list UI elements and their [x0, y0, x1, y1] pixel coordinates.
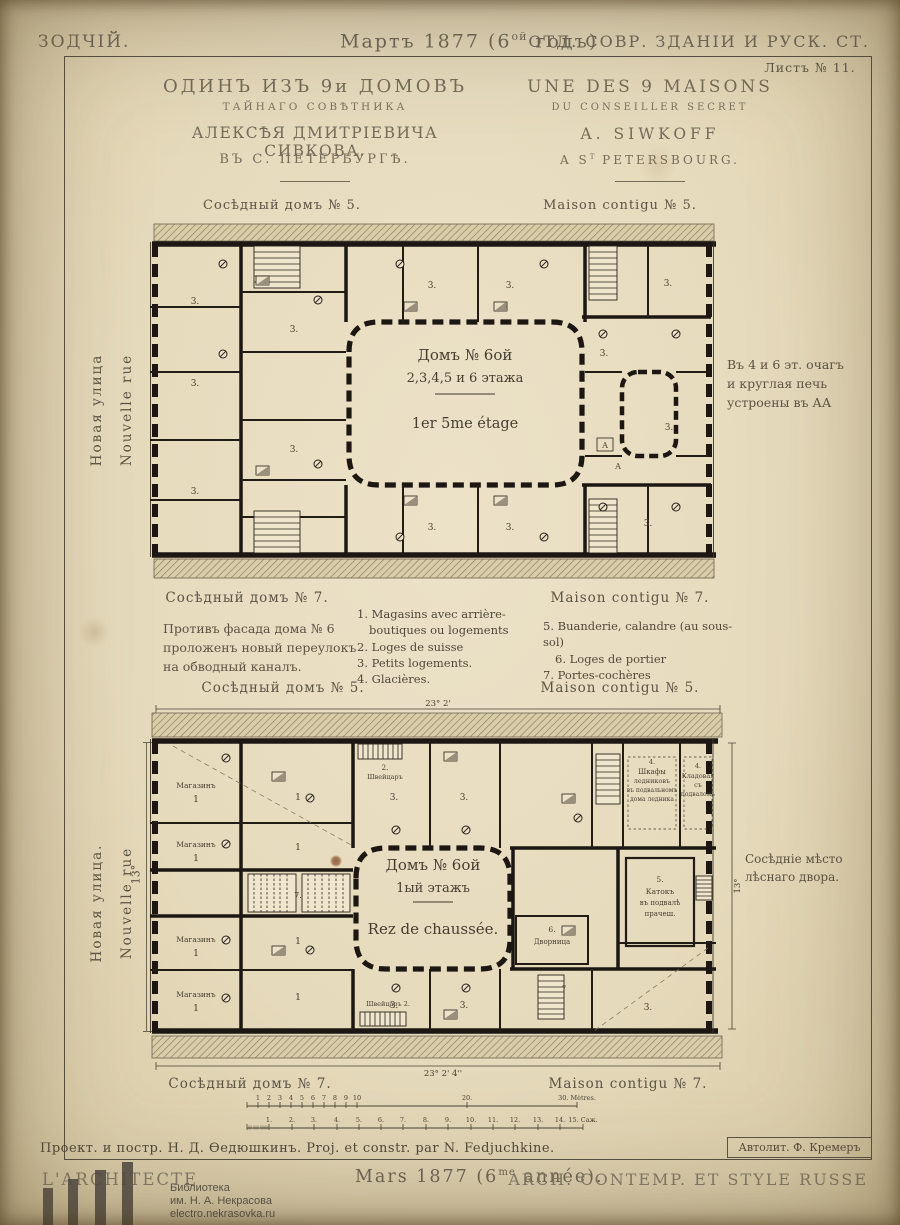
title-fr-line1: UNE DES 9 MAISONS — [500, 77, 800, 97]
text-line: 5. Buanderie, calandre (au sous-sol) — [543, 618, 743, 651]
street-label-ru-upper: Новая улица — [89, 335, 105, 485]
scale-tick-label: 8. — [423, 1116, 429, 1124]
watermark-logo-bar — [95, 1170, 106, 1225]
dim-label: 23° 2' — [425, 699, 451, 709]
room-label: дома ледника — [630, 796, 674, 803]
room-label: Швейцаръ — [367, 773, 403, 781]
text-line: Въ 4 и 6 эт. очагъ — [727, 356, 875, 375]
text-line: 2. Loges de suisse — [357, 639, 542, 655]
text-line: boutiques ou logements — [357, 622, 542, 638]
title-fr-rule — [615, 181, 685, 182]
text-line: 4. Glacières. — [357, 671, 542, 687]
room-label: 3. — [644, 519, 653, 529]
sheet-number: Листъ № 11. — [750, 60, 870, 75]
scale-tick-label: 8 — [333, 1094, 337, 1102]
title-fr-line4-b: PETERSBOURG. — [595, 153, 740, 167]
lower-neighbor-top-fr: Maison contigu № 5. — [520, 680, 720, 696]
scale-tick-label: 3. — [311, 1116, 317, 1124]
journal-name: ЗОДЧІЙ. — [38, 32, 130, 52]
footer-date-main: Mars 1877 (6 — [355, 1167, 498, 1187]
room-label: 1 — [295, 792, 301, 803]
scale-tick-label: 7 — [322, 1094, 326, 1102]
scale-tick-label: 6 — [311, 1094, 315, 1102]
room-label: Магазинъ — [176, 840, 216, 849]
text-line: на обводный каналъ. — [163, 658, 363, 677]
title-fr-line2: DU CONSEILLER SECRET — [500, 102, 800, 113]
plan-title: Домъ № 6ой — [418, 346, 513, 364]
text-line: 6. Loges de portier — [543, 651, 743, 667]
title-fr-line4: A ST PETERSBOURG. — [500, 153, 800, 167]
lower-neighbor-top-ru: Сосѣдный домъ № 5. — [183, 680, 383, 696]
room-label: А — [602, 441, 608, 450]
title-fr-line3: A. SIWKOFF — [500, 125, 800, 143]
ground-floor-plan-drawing: Домъ № 6ой1ый этажъRez de chaussée.23° 2… — [148, 698, 748, 1078]
title-ru-rule — [280, 181, 350, 182]
scale-tick-label: 6. — [378, 1116, 384, 1124]
lower-neighbor-bottom-ru: Сосѣдный домъ № 7. — [150, 1076, 350, 1092]
masthead-section: ОТД. СОВР. ЗДАНІИ И РУСК. СТ. — [528, 32, 870, 51]
scale-tick-label: 9. — [445, 1116, 451, 1124]
room-label: 1 — [193, 853, 199, 864]
text-line: electro.nekrasovka.ru — [170, 1208, 275, 1221]
text-line: им. Н. А. Некрасова — [170, 1195, 275, 1208]
plan-title: 2,3,4,5 и 6 этажа — [407, 371, 524, 386]
room-label: 3. — [506, 281, 515, 291]
scale-tick-label: 4 — [289, 1094, 293, 1102]
text-line: Сосѣдніе мѣсто — [745, 850, 880, 868]
scale-tick-label: 2. — [289, 1116, 295, 1124]
scale-tick-label: 3 — [278, 1094, 282, 1102]
room-label: 3. — [600, 349, 609, 359]
masthead-date-sup: ой — [511, 30, 527, 43]
watermark-logo-bar — [43, 1188, 53, 1225]
room-label: ледниковъ — [634, 777, 670, 785]
legend-column-1: 1. Magasins avec arrière-boutiques ou lo… — [357, 606, 542, 688]
lower-plan-note: Сосѣдніе мѣстолѣснаго двора. — [745, 850, 880, 886]
room-label: 3. — [644, 1003, 653, 1013]
room-label: Магазинъ — [176, 935, 216, 944]
room-label: 2. — [382, 764, 389, 772]
scale-tick-label: 12. — [510, 1116, 520, 1124]
dim-label: 23° 2' 4'' — [424, 1069, 462, 1078]
room-label: 3. — [290, 325, 299, 335]
room-label: 7 — [562, 985, 566, 993]
room-label: 3. — [191, 297, 200, 307]
room-label: 3. — [460, 1001, 469, 1011]
room-label: А — [615, 462, 621, 471]
legend-column-2: 5. Buanderie, calandre (au sous-sol)6. L… — [543, 618, 743, 683]
room-label: подваломъ — [681, 791, 715, 798]
party-wall-hatch-top — [152, 713, 722, 737]
room-label: 1 — [295, 992, 301, 1003]
masthead-date-main: Мартъ 1877 (6 — [340, 30, 511, 52]
room-label: прачеш. — [645, 910, 676, 918]
plan-title: Домъ № 6ой — [386, 856, 481, 874]
lithographer-credit: Автолит. Ф. Кремеръ — [727, 1137, 872, 1158]
scale-tick-label: 20. — [462, 1094, 472, 1102]
text-line: устроены въ АА — [727, 394, 875, 413]
room-label: 3. — [506, 523, 515, 533]
room-label: 7. — [294, 891, 302, 900]
room-label: въ подвалѣ — [640, 899, 681, 907]
scale-tick-label: 15. Саж. — [568, 1116, 597, 1124]
scale-tick-label: 9 — [344, 1094, 348, 1102]
tile-stove-icons — [256, 276, 507, 505]
room-label: 1 — [295, 842, 301, 853]
scale-tick-label: 30. Mètres. — [558, 1094, 596, 1102]
room-label: 1 — [193, 794, 199, 805]
room-label: Магазинъ — [176, 990, 216, 999]
upper-neighbor-bottom-fr: Maison contigu № 7. — [530, 590, 730, 606]
room-label: Катокъ — [646, 887, 675, 896]
party-wall-hatch-bottom — [154, 559, 714, 578]
upper-neighbor-top-fr: Maison contigu № 5. — [520, 198, 720, 213]
scale-tick-label: 7. — [400, 1116, 406, 1124]
scale-bars: 1234567891020.30. Mètres. 1.2.3.4.5.6.7.… — [233, 1092, 733, 1140]
plan-title: Rez de chaussée. — [368, 920, 499, 938]
watermark-logo-bar — [68, 1179, 78, 1225]
room-label: 1 — [193, 1003, 199, 1014]
architect-credit: Проект. и постр. Н. Д. Ѳедюшкинъ. Proj. … — [40, 1141, 555, 1156]
scale-tick-label: 10. — [466, 1116, 476, 1124]
room-label: 3. — [191, 379, 200, 389]
street-label-fr-lower: Nouvelle rue — [119, 828, 135, 978]
upper-floor-plan-drawing: Домъ № 6ой2,3,4,5 и 6 этажа1er 5me étage… — [148, 222, 723, 582]
title-ru-line2: ТАЙНАГО СОВѢТНИКА — [155, 101, 475, 113]
dim-label: 13° — [733, 878, 743, 893]
room-label: 3. — [428, 281, 437, 291]
legend-note-ru: Противъ фасада дома № 6проложенъ новый п… — [163, 620, 363, 676]
scale-tick-label: 5. — [356, 1116, 362, 1124]
scanned-page: ЗОДЧІЙ. Мартъ 1877 (6ой годъ) ОТД. СОВР.… — [0, 0, 900, 1225]
room-label: 1 — [295, 936, 301, 947]
plan-title: 1ый этажъ — [396, 881, 470, 896]
room-label: 4. — [649, 758, 655, 766]
title-ru-line4: ВЪ С. ПЕТЕРБУРГѢ. — [155, 152, 475, 167]
upper-neighbor-top-ru: Сосѣдный домъ № 5. — [182, 198, 382, 213]
footer-section-fr: ARCH. CONTEMP. ET STYLE RUSSE — [508, 1170, 868, 1189]
room-label: Дворница — [534, 938, 570, 946]
room-label: 3. — [428, 523, 437, 533]
room-label: Швейцаръ 2. — [366, 1000, 410, 1008]
title-fr-line4-a: A S — [560, 153, 590, 167]
text-line: 3. Petits logements. — [357, 655, 542, 671]
text-line: Библиотека — [170, 1182, 275, 1195]
room-label: въ подвальномъ — [627, 787, 678, 794]
text-line: 1. Magasins avec arrière- — [357, 606, 542, 622]
room-label: Шкафы — [638, 768, 666, 776]
party-wall-hatch-top — [154, 224, 714, 241]
scale-tick-label: 14. — [555, 1116, 565, 1124]
room-label: Магазинъ — [176, 781, 216, 790]
metric-scale: 1234567891020.30. Mètres. — [247, 1094, 596, 1108]
watermark-logo-bar — [122, 1162, 133, 1225]
scale-tick-label: 13. — [533, 1116, 543, 1124]
room-label: 1 — [193, 948, 199, 959]
room-label: 3. — [460, 793, 469, 803]
street-label-ru-lower: Новая улица. — [89, 828, 105, 978]
room-label: 3. — [390, 793, 399, 803]
title-ru-line1: ОДИНЪ ИЗЪ 9и ДОМОВЪ — [155, 76, 475, 97]
text-line: проложенъ новый переулокъ — [163, 639, 363, 658]
room-label: 3. — [665, 423, 674, 433]
room-label: 3. — [664, 279, 673, 289]
text-line: и круглая печь — [727, 375, 875, 394]
room-label: Кладовая — [682, 772, 715, 780]
text-line: лѣснаго двора. — [745, 868, 880, 886]
dim-label-left: 13° — [130, 855, 143, 895]
room-label: 4. — [695, 762, 701, 770]
room-label: 3. — [290, 445, 299, 455]
scale-tick-label: 11. — [488, 1116, 498, 1124]
room-label: съ — [694, 781, 702, 789]
lower-neighbor-bottom-fr: Maison contigu № 7. — [528, 1076, 728, 1092]
text-line: Противъ фасада дома № 6 — [163, 620, 363, 639]
scale-tick-label: 2 — [267, 1094, 271, 1102]
scale-tick-label: 1. — [266, 1116, 272, 1124]
upper-neighbor-bottom-ru: Сосѣдный домъ № 7. — [147, 590, 347, 606]
room-label: 6. — [548, 925, 555, 934]
plan-title: 1er 5me étage — [412, 416, 518, 432]
room-label: 3. — [191, 487, 200, 497]
party-wall-hatch-bottom — [152, 1036, 722, 1058]
street-label-fr-upper: Nouvelle rue — [119, 335, 135, 485]
sazhen-scale: 1.2.3.4.5.6.7.8.9.10.11.12.13.14.15. Саж… — [247, 1116, 598, 1130]
scale-tick-label: 5 — [300, 1094, 304, 1102]
upper-plan-note: Въ 4 и 6 эт. очагъи круглая печьустроены… — [727, 356, 875, 412]
watermark-text: Библиотекаим. Н. А. Некрасоваelectro.nek… — [170, 1182, 275, 1221]
scale-tick-label: 4. — [334, 1116, 340, 1124]
scale-tick-label: 1 — [256, 1094, 260, 1102]
room-label: 5. — [656, 875, 663, 884]
scale-tick-label: 10 — [353, 1094, 361, 1102]
